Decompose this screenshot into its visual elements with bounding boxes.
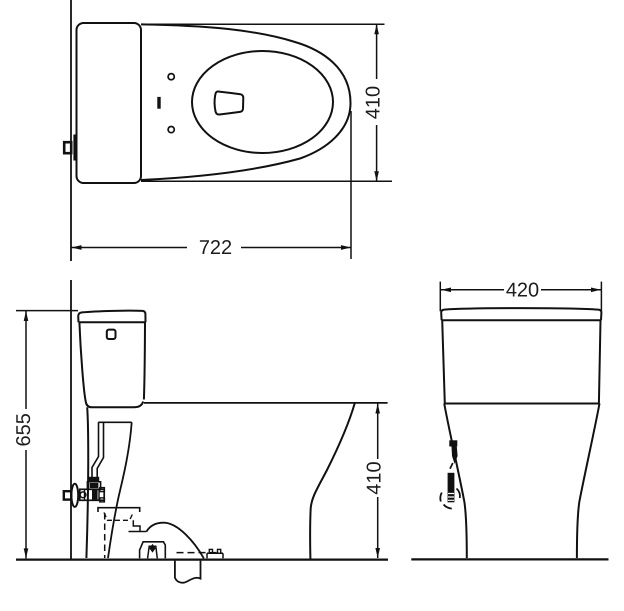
svg-text:655: 655 [13,413,35,446]
svg-text:722: 722 [199,237,232,259]
svg-text:410: 410 [363,86,385,119]
svg-text:410: 410 [364,461,386,494]
svg-text:420: 420 [506,280,539,302]
